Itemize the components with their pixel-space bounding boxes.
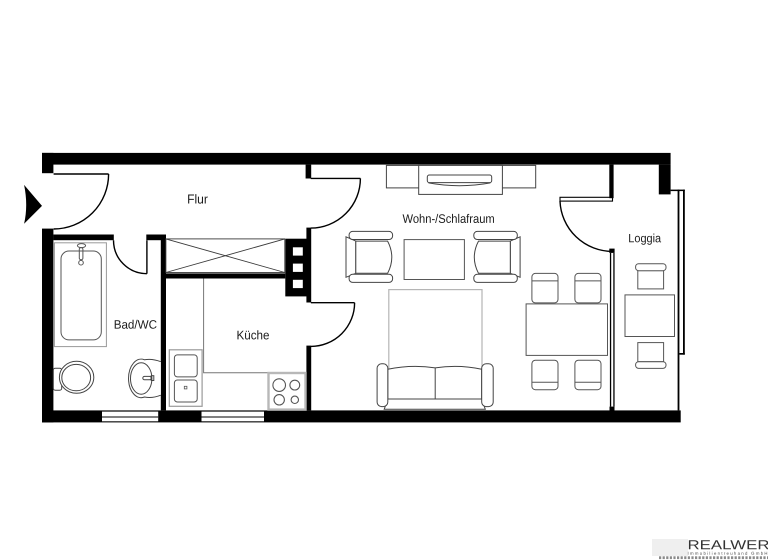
svg-text:Immobilientreuhand GmbH: Immobilientreuhand GmbH xyxy=(687,551,767,556)
svg-text:Loggia: Loggia xyxy=(628,231,661,245)
svg-text:Flur: Flur xyxy=(187,192,208,207)
svg-text:Küche: Küche xyxy=(236,328,269,342)
svg-text:Wohn-/Schlafraum: Wohn-/Schlafraum xyxy=(402,212,494,226)
svg-text:Bad/WC: Bad/WC xyxy=(114,318,157,332)
